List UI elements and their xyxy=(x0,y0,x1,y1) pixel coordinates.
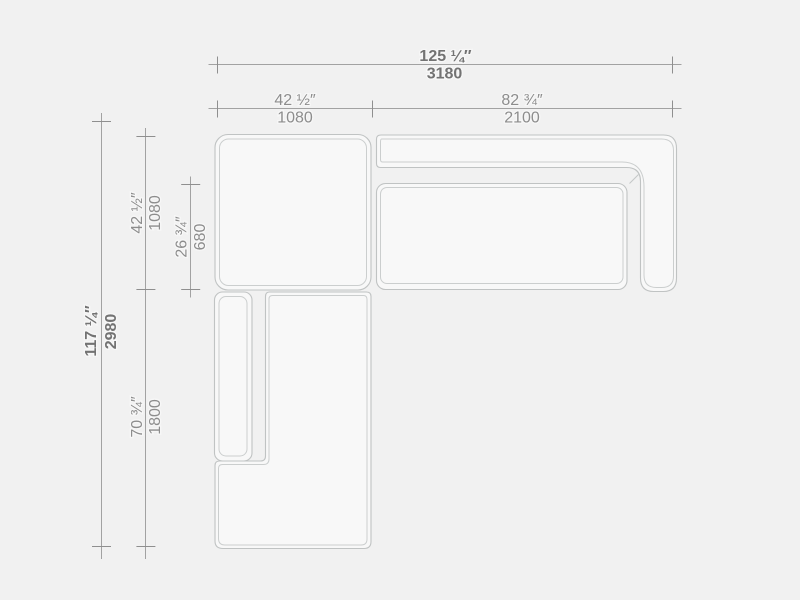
svg-text:1800: 1800 xyxy=(147,399,164,435)
svg-text:3180: 3180 xyxy=(427,66,463,83)
svg-text:42 ½″: 42 ½″ xyxy=(129,192,146,234)
svg-text:1080: 1080 xyxy=(147,195,164,231)
svg-text:2100: 2100 xyxy=(504,110,540,127)
svg-text:117 ¼″: 117 ¼″ xyxy=(83,305,100,357)
svg-text:70 ¾″: 70 ¾″ xyxy=(129,396,146,438)
svg-text:82 ¾″: 82 ¾″ xyxy=(501,92,543,109)
svg-text:26 ¾″: 26 ¾″ xyxy=(174,216,191,258)
svg-text:125 ¼″: 125 ¼″ xyxy=(419,48,471,65)
svg-text:1080: 1080 xyxy=(277,110,313,127)
svg-text:2980: 2980 xyxy=(103,314,120,350)
svg-text:680: 680 xyxy=(192,224,209,251)
svg-text:42 ½″: 42 ½″ xyxy=(274,92,316,109)
